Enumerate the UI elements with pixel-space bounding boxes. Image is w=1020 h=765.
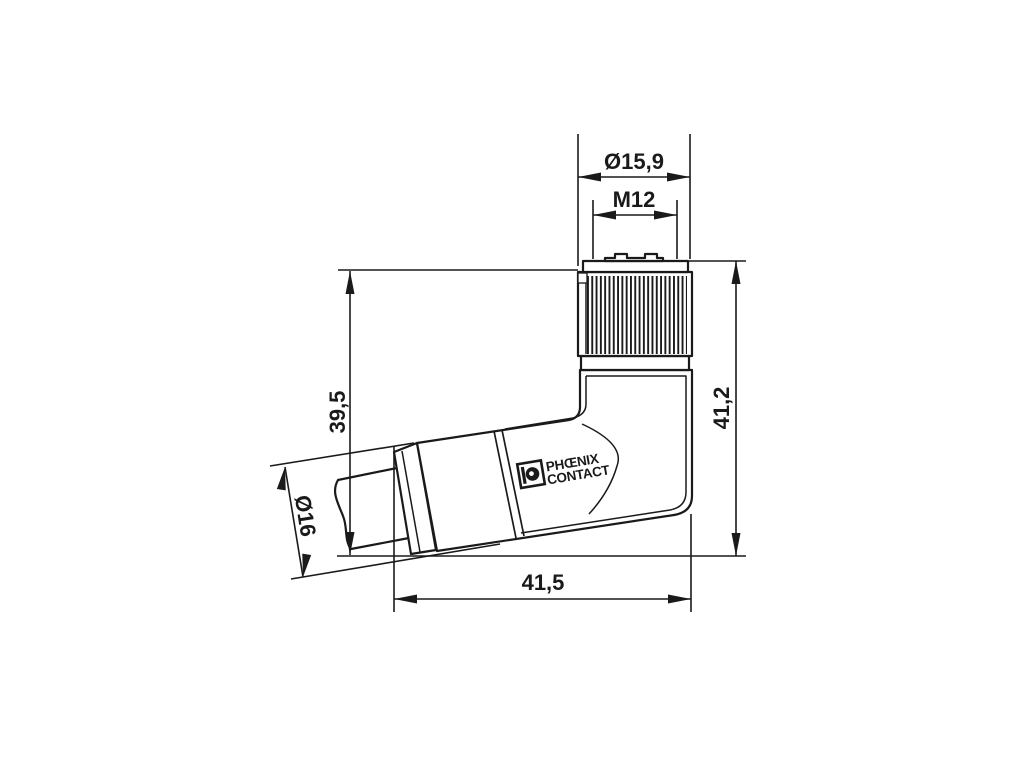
connector-part-group: PHŒNIX CONTACT xyxy=(335,254,692,554)
drawing-canvas: PHŒNIX CONTACT xyxy=(0,0,1020,765)
connector-face-plate xyxy=(583,261,688,272)
coupling-ring xyxy=(581,356,689,370)
arrowhead-left xyxy=(578,173,601,182)
dim-label-height-41-2: 41,2 xyxy=(709,387,734,430)
phoenix-contact-logo-icon xyxy=(517,460,545,488)
arrowhead-up xyxy=(732,261,741,284)
arrowhead-right xyxy=(668,595,691,604)
connector-dimension-drawing: PHŒNIX CONTACT xyxy=(0,0,1020,765)
arrowhead-right xyxy=(654,211,677,220)
arrowhead-up xyxy=(346,271,355,294)
dim-height-39-5: 39,5 xyxy=(325,271,355,555)
knurl-striping xyxy=(587,276,687,354)
arrowhead-right xyxy=(667,173,690,182)
dim-label-width-41-5: 41,5 xyxy=(522,570,565,595)
dim-label-thread: M12 xyxy=(613,187,656,212)
dim-label-connector-diameter: Ø15,9 xyxy=(604,149,664,174)
knurl-corner-notch xyxy=(578,273,587,283)
arrowhead-down xyxy=(732,533,741,556)
ext-line xyxy=(270,443,414,466)
connector-keyed-insert xyxy=(605,254,663,261)
dim-label-cable-diameter: Ø16 xyxy=(290,493,321,538)
arrowhead-left xyxy=(394,595,417,604)
dim-height-41-2: 41,2 xyxy=(709,261,741,556)
dim-label-height-39-5: 39,5 xyxy=(325,391,350,434)
ext-line xyxy=(291,544,500,579)
dim-thread: M12 xyxy=(593,187,677,259)
